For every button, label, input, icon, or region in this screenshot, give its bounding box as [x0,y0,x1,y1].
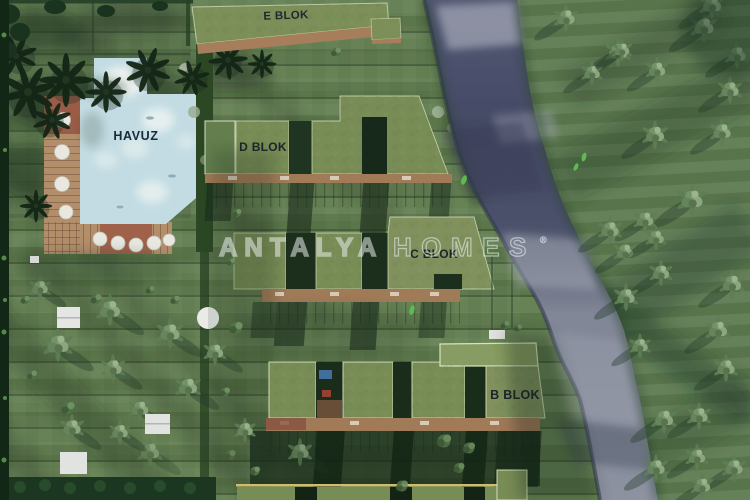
svg-text:ANTALYA: ANTALYA [219,234,383,262]
svg-text:HOMES: HOMES [393,232,536,262]
svg-text:®: ® [540,235,547,245]
